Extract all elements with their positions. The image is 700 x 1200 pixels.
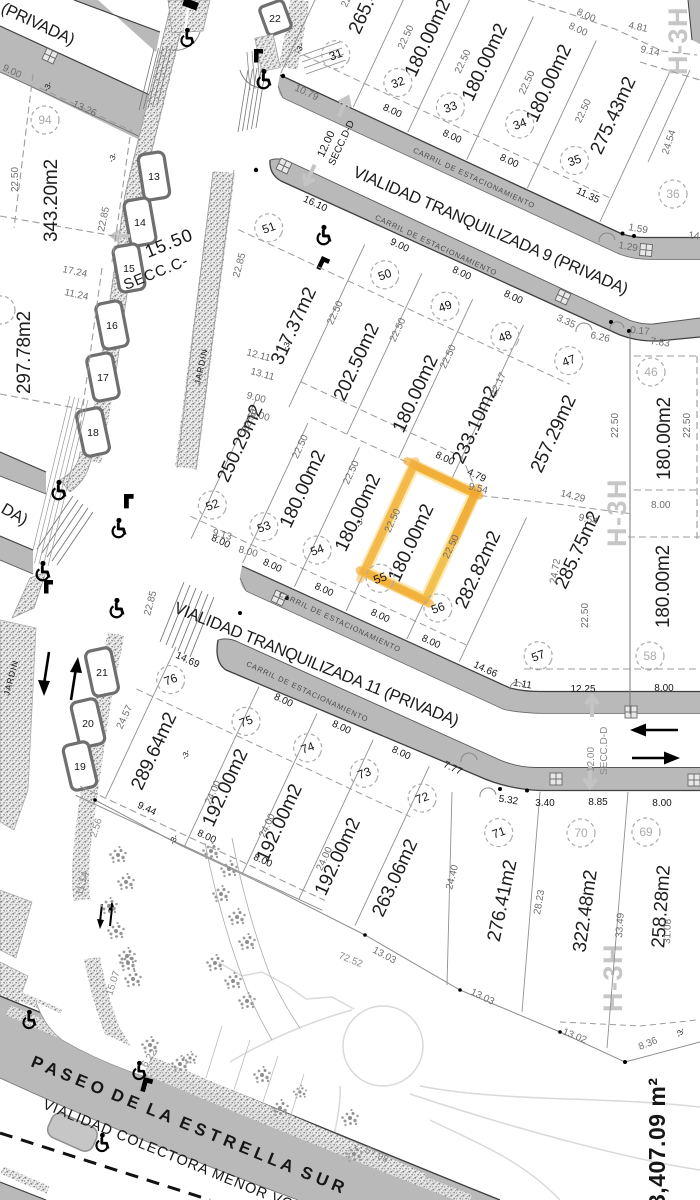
svg-text:22.50: 22.50: [580, 603, 591, 628]
svg-text:46: 46: [644, 365, 658, 379]
svg-text:3,407.09 m²: 3,407.09 m²: [644, 1077, 670, 1200]
svg-text:70: 70: [574, 826, 588, 840]
svg-text:3.40: 3.40: [535, 798, 555, 809]
svg-text:297.78m2: 297.78m2: [14, 311, 35, 394]
svg-text:69: 69: [639, 825, 653, 839]
svg-text:22: 22: [269, 13, 281, 25]
svg-text:22.50: 22.50: [682, 413, 693, 438]
svg-text:19: 19: [74, 761, 86, 773]
svg-text:58: 58: [643, 649, 657, 663]
svg-text:12.25: 12.25: [570, 684, 595, 695]
svg-text:8.00: 8.00: [654, 683, 674, 694]
svg-text:H-3H: H-3H: [602, 478, 632, 547]
svg-text:31.08: 31.08: [662, 918, 674, 944]
svg-text:H-3H: H-3H: [663, 6, 693, 75]
svg-text:8.85: 8.85: [588, 797, 608, 808]
svg-text:13: 13: [148, 171, 160, 183]
svg-text:22.50: 22.50: [10, 167, 21, 192]
svg-text:18: 18: [87, 427, 99, 439]
svg-text:8.00: 8.00: [651, 500, 671, 511]
svg-text:12.00: 12.00: [586, 747, 597, 772]
svg-text:14: 14: [134, 217, 146, 229]
svg-text:8.00: 8.00: [652, 798, 672, 809]
svg-text:180.00m2: 180.00m2: [653, 545, 674, 628]
svg-text:0.17: 0.17: [630, 325, 651, 338]
svg-text:21: 21: [96, 667, 108, 679]
svg-text:180.00m2: 180.00m2: [654, 397, 675, 480]
svg-text:16: 16: [106, 320, 118, 332]
svg-text:33.49: 33.49: [614, 912, 627, 938]
svg-text:SECC.D-D: SECC.D-D: [599, 727, 610, 775]
svg-text:36: 36: [666, 187, 680, 201]
svg-text:17: 17: [97, 372, 109, 384]
svg-text:20: 20: [82, 718, 94, 730]
svg-text:94: 94: [38, 113, 52, 127]
svg-text:343.20m2: 343.20m2: [41, 159, 62, 242]
svg-text:22.50: 22.50: [610, 413, 621, 438]
